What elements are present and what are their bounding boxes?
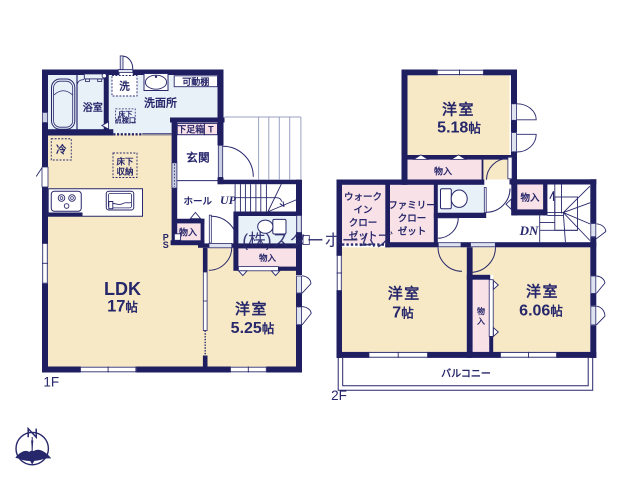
svg-text:6.06帖: 6.06帖 — [519, 303, 563, 320]
svg-text:17帖: 17帖 — [107, 298, 138, 316]
svg-text:可動棚: 可動棚 — [182, 76, 209, 87]
svg-text:洋室: 洋室 — [388, 285, 421, 303]
svg-text:イン: イン — [353, 205, 372, 216]
svg-text:1F: 1F — [43, 375, 59, 390]
svg-text:物入: 物入 — [259, 253, 277, 263]
svg-text:収納: 収納 — [116, 167, 133, 177]
svg-text:バルコニー: バルコニー — [441, 368, 491, 380]
svg-text:ウォーク: ウォーク — [344, 192, 382, 203]
svg-text:冷: 冷 — [56, 143, 67, 156]
svg-text:物: 物 — [477, 306, 485, 316]
svg-text:DN: DN — [519, 223, 539, 238]
svg-text:浴室: 浴室 — [83, 101, 103, 114]
svg-text:玄関: 玄関 — [186, 151, 210, 165]
svg-text:物入: 物入 — [179, 227, 197, 238]
svg-text:UP: UP — [220, 193, 237, 207]
svg-text:物入: 物入 — [434, 166, 452, 177]
svg-text:(株)スターホームズ: (株)スターホームズ — [242, 231, 393, 251]
svg-text:S: S — [163, 240, 169, 250]
svg-text:T: T — [208, 125, 214, 135]
svg-text:洋室: 洋室 — [526, 283, 559, 301]
svg-text:洗面所: 洗面所 — [144, 96, 177, 110]
svg-text:5.25帖: 5.25帖 — [231, 320, 275, 337]
svg-text:ゼット: ゼット — [398, 226, 427, 238]
svg-text:ホール: ホール — [183, 196, 212, 207]
svg-text:入: 入 — [476, 317, 485, 326]
svg-text:点検口: 点検口 — [115, 116, 136, 125]
svg-text:クロー: クロー — [349, 218, 378, 229]
svg-text:下足箱: 下足箱 — [177, 124, 204, 135]
svg-text:5.18帖: 5.18帖 — [437, 120, 481, 137]
svg-text:2F: 2F — [331, 388, 347, 403]
svg-text:床下: 床下 — [116, 157, 134, 167]
svg-text:クロー: クロー — [398, 214, 427, 225]
svg-text:LDK: LDK — [104, 279, 141, 299]
svg-text:洋室: 洋室 — [235, 300, 268, 318]
svg-text:ファミリー: ファミリー — [388, 201, 436, 212]
svg-text:7帖: 7帖 — [392, 305, 414, 322]
svg-text:洗: 洗 — [119, 80, 130, 93]
svg-text:物入: 物入 — [520, 192, 540, 204]
svg-text:洋室: 洋室 — [442, 101, 475, 119]
